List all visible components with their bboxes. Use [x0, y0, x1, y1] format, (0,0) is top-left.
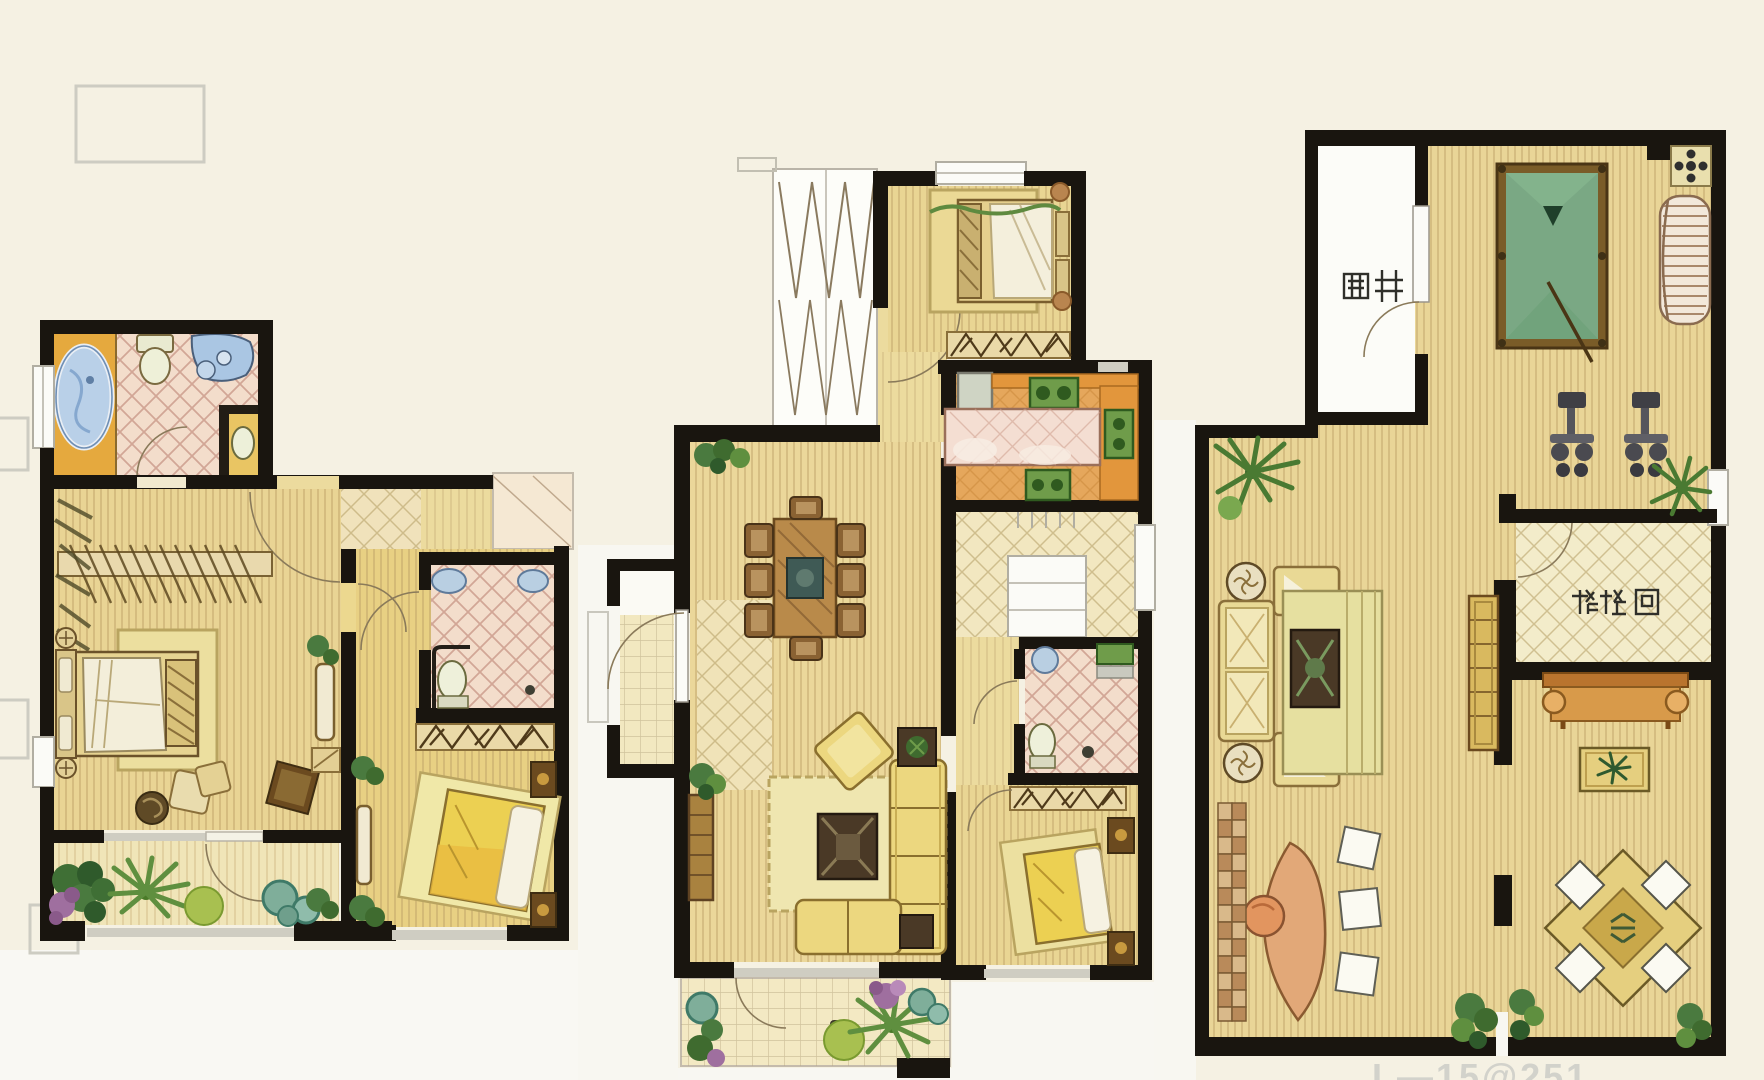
svg-text:L—15@251: L—15@251 [1372, 1056, 1589, 1080]
